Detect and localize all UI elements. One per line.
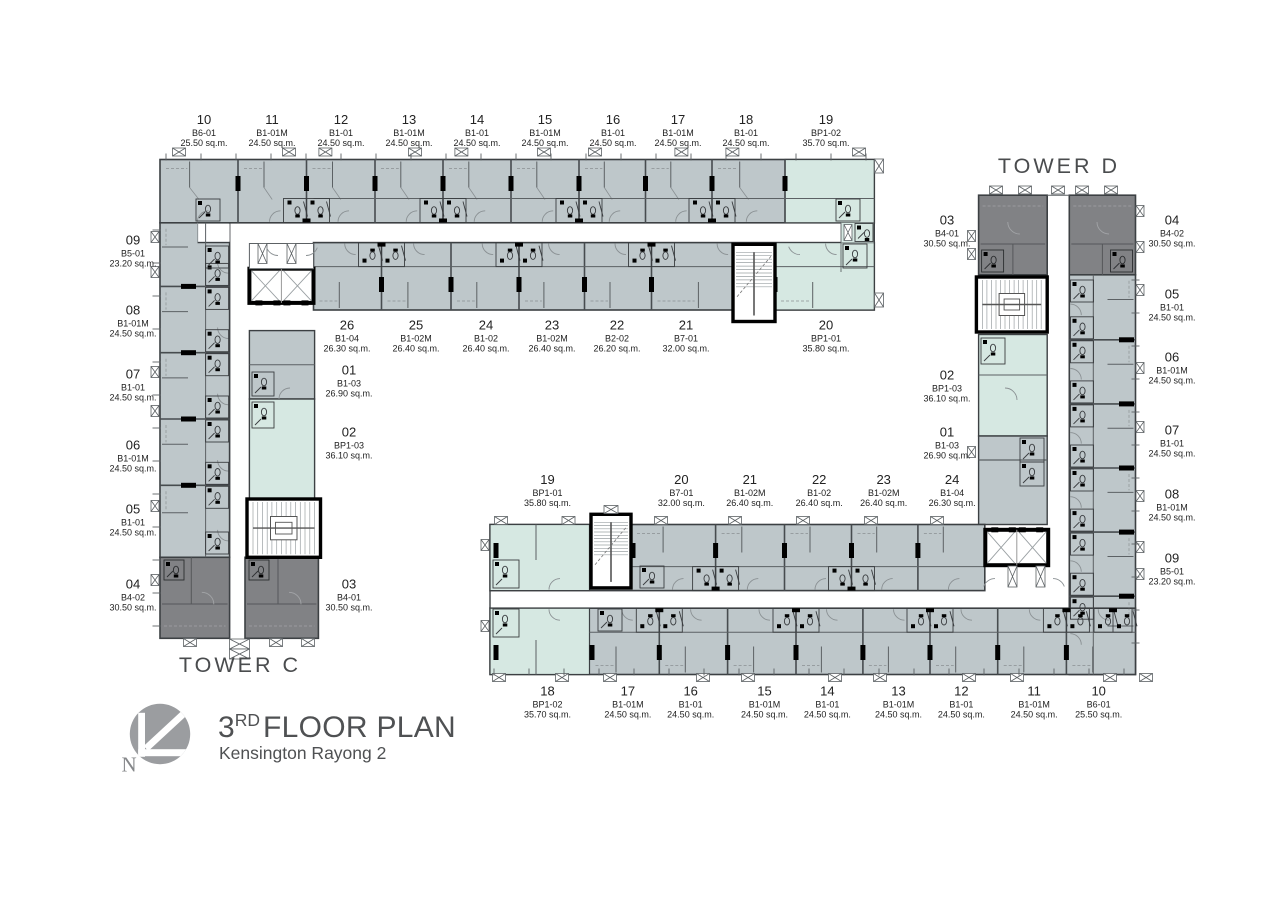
svg-text:11: 11 [1027,684,1041,699]
svg-text:B1-02M: B1-02M [868,488,900,498]
svg-text:23.20 sq.m.: 23.20 sq.m. [1148,577,1195,587]
svg-text:B4-01: B4-01 [935,229,959,239]
svg-text:B1-02M: B1-02M [734,488,766,498]
svg-text:B5-01: B5-01 [1160,567,1184,577]
svg-text:TOWER C: TOWER C [179,653,301,677]
svg-text:08: 08 [1165,487,1179,502]
svg-text:BP1-01: BP1-01 [532,488,562,498]
svg-text:B1-01: B1-01 [121,518,145,528]
svg-text:24: 24 [945,472,959,487]
svg-text:19: 19 [819,112,833,127]
svg-text:09: 09 [1165,551,1179,566]
svg-text:B1-01: B1-01 [329,128,353,138]
svg-text:24.50 sq.m.: 24.50 sq.m. [741,710,788,720]
svg-text:13: 13 [891,684,905,699]
svg-text:01: 01 [940,425,954,440]
svg-text:16: 16 [683,684,697,699]
svg-text:19: 19 [540,472,554,487]
svg-text:B4-02: B4-02 [1160,229,1184,239]
svg-text:24.50 sq.m.: 24.50 sq.m. [667,710,714,720]
svg-text:B1-01M: B1-01M [529,128,561,138]
svg-text:B4-01: B4-01 [337,593,361,603]
svg-text:B1-01M: B1-01M [749,700,781,710]
svg-text:B7-01: B7-01 [669,488,693,498]
svg-text:04: 04 [126,577,140,592]
svg-text:BP1-01: BP1-01 [811,334,841,344]
svg-text:26.40 sq.m.: 26.40 sq.m. [726,498,773,508]
svg-text:26.40 sq.m.: 26.40 sq.m. [860,498,907,508]
svg-text:24.50 sq.m.: 24.50 sq.m. [109,393,156,403]
svg-text:B1-03: B1-03 [337,379,361,389]
svg-text:BP1-02: BP1-02 [532,700,562,710]
svg-text:24.50 sq.m.: 24.50 sq.m. [1011,710,1058,720]
svg-text:24.50 sq.m.: 24.50 sq.m. [938,710,985,720]
svg-text:18: 18 [540,684,554,699]
svg-text:24.50 sq.m.: 24.50 sq.m. [1148,513,1195,523]
svg-text:30.50 sq.m.: 30.50 sq.m. [325,603,372,613]
svg-text:20: 20 [819,318,833,333]
svg-text:B1-01M: B1-01M [1018,700,1050,710]
svg-text:BP1-03: BP1-03 [932,384,962,394]
svg-text:07: 07 [126,367,140,382]
svg-text:24.50 sq.m.: 24.50 sq.m. [722,138,769,148]
svg-text:12: 12 [954,684,968,699]
svg-text:B1-01M: B1-01M [1156,366,1188,376]
svg-text:36.10 sq.m.: 36.10 sq.m. [923,394,970,404]
svg-text:14: 14 [470,112,484,127]
svg-text:B1-01M: B1-01M [662,128,694,138]
svg-text:22: 22 [610,318,624,333]
svg-text:17: 17 [671,112,685,127]
svg-text:B1-04: B1-04 [940,488,964,498]
svg-text:26.40 sq.m.: 26.40 sq.m. [796,498,843,508]
svg-text:36.10 sq.m.: 36.10 sq.m. [325,451,372,461]
svg-text:B1-02M: B1-02M [536,334,568,344]
svg-text:24.50 sq.m.: 24.50 sq.m. [654,138,701,148]
svg-text:15: 15 [538,112,552,127]
svg-text:30.50 sq.m.: 30.50 sq.m. [923,239,970,249]
svg-text:30.50 sq.m.: 30.50 sq.m. [1148,239,1195,249]
svg-text:B5-01: B5-01 [121,249,145,259]
svg-text:20: 20 [674,472,688,487]
svg-text:23: 23 [876,472,890,487]
svg-text:24.50 sq.m.: 24.50 sq.m. [875,710,922,720]
svg-text:B1-01: B1-01 [949,700,973,710]
svg-text:24.50 sq.m.: 24.50 sq.m. [804,710,851,720]
svg-text:B1-02: B1-02 [807,488,831,498]
svg-text:24.50 sq.m.: 24.50 sq.m. [317,138,364,148]
svg-text:B1-02: B1-02 [474,334,498,344]
svg-text:26.20 sq.m.: 26.20 sq.m. [593,344,640,354]
svg-text:BP1-03: BP1-03 [334,441,364,451]
svg-text:B1-01M: B1-01M [612,700,644,710]
svg-text:N: N [122,753,137,777]
svg-text:B1-01M: B1-01M [1156,503,1188,513]
svg-text:17: 17 [621,684,635,699]
svg-text:30.50 sq.m.: 30.50 sq.m. [109,603,156,613]
svg-text:B1-01: B1-01 [734,128,758,138]
svg-text:24.50 sq.m.: 24.50 sq.m. [521,138,568,148]
svg-text:24.50 sq.m.: 24.50 sq.m. [453,138,500,148]
svg-text:24.50 sq.m.: 24.50 sq.m. [589,138,636,148]
svg-text:13: 13 [402,112,416,127]
svg-text:04: 04 [1165,213,1179,228]
svg-text:35.70 sq.m.: 35.70 sq.m. [802,138,849,148]
svg-text:03: 03 [342,577,356,592]
svg-text:B6-01: B6-01 [1087,700,1111,710]
svg-text:25: 25 [409,318,423,333]
svg-text:24.50 sq.m.: 24.50 sq.m. [1148,376,1195,386]
svg-text:32.00 sq.m.: 32.00 sq.m. [662,344,709,354]
svg-text:B1-01M: B1-01M [393,128,425,138]
svg-text:10: 10 [197,112,211,127]
svg-text:26.40 sq.m.: 26.40 sq.m. [528,344,575,354]
svg-text:B1-01M: B1-01M [256,128,288,138]
svg-text:B1-02M: B1-02M [400,334,432,344]
svg-text:26: 26 [340,318,354,333]
svg-text:16: 16 [606,112,620,127]
svg-text:24.50 sq.m.: 24.50 sq.m. [248,138,295,148]
svg-text:24: 24 [479,318,493,333]
svg-text:B1-01: B1-01 [121,383,145,393]
svg-text:03: 03 [940,213,954,228]
svg-text:21: 21 [743,472,757,487]
svg-text:08: 08 [126,303,140,318]
svg-text:26.30 sq.m.: 26.30 sq.m. [323,344,370,354]
svg-text:26.30 sq.m.: 26.30 sq.m. [929,498,976,508]
svg-text:B1-01: B1-01 [601,128,625,138]
svg-text:05: 05 [1165,287,1179,302]
svg-text:26.40 sq.m.: 26.40 sq.m. [462,344,509,354]
svg-text:24.50 sq.m.: 24.50 sq.m. [1148,313,1195,323]
svg-text:B2-02: B2-02 [605,334,629,344]
svg-text:B1-01: B1-01 [679,700,703,710]
svg-text:B1-01M: B1-01M [883,700,915,710]
svg-text:25.50 sq.m.: 25.50 sq.m. [1075,710,1122,720]
svg-text:24.50 sq.m.: 24.50 sq.m. [385,138,432,148]
svg-text:15: 15 [757,684,771,699]
svg-text:B4-02: B4-02 [121,593,145,603]
svg-text:B1-04: B1-04 [335,334,359,344]
svg-text:24.50 sq.m.: 24.50 sq.m. [604,710,651,720]
svg-text:06: 06 [126,438,140,453]
svg-text:12: 12 [334,112,348,127]
svg-text:24.50 sq.m.: 24.50 sq.m. [109,329,156,339]
svg-text:18: 18 [739,112,753,127]
svg-text:B1-03: B1-03 [935,441,959,451]
svg-text:BP1-02: BP1-02 [811,128,841,138]
svg-text:B1-01: B1-01 [1160,439,1184,449]
svg-text:B1-01M: B1-01M [117,454,149,464]
svg-text:32.00 sq.m.: 32.00 sq.m. [658,498,705,508]
svg-text:06: 06 [1165,350,1179,365]
svg-text:01: 01 [342,363,356,378]
svg-text:35.70 sq.m.: 35.70 sq.m. [524,710,571,720]
svg-text:22: 22 [812,472,826,487]
svg-text:Kensington Rayong 2: Kensington Rayong 2 [219,743,386,763]
svg-text:23.20 sq.m.: 23.20 sq.m. [109,259,156,269]
svg-text:26.40 sq.m.: 26.40 sq.m. [392,344,439,354]
svg-text:24.50 sq.m.: 24.50 sq.m. [109,528,156,538]
svg-text:35.80 sq.m.: 35.80 sq.m. [802,344,849,354]
svg-text:TOWER D: TOWER D [998,154,1120,178]
svg-text:26.90 sq.m.: 26.90 sq.m. [325,389,372,399]
svg-text:07: 07 [1165,423,1179,438]
svg-text:05: 05 [126,502,140,517]
svg-text:21: 21 [679,318,693,333]
svg-text:23: 23 [545,318,559,333]
svg-text:B1-01: B1-01 [1160,303,1184,313]
svg-text:10: 10 [1091,684,1105,699]
svg-text:02: 02 [940,368,954,383]
svg-text:24.50 sq.m.: 24.50 sq.m. [109,464,156,474]
svg-text:B1-01: B1-01 [815,700,839,710]
svg-text:09: 09 [126,233,140,248]
svg-text:35.80 sq.m.: 35.80 sq.m. [524,498,571,508]
svg-text:11: 11 [265,112,279,127]
svg-text:02: 02 [342,425,356,440]
svg-text:14: 14 [820,684,834,699]
svg-text:B1-01: B1-01 [465,128,489,138]
svg-text:B6-01: B6-01 [192,128,216,138]
svg-text:B7-01: B7-01 [674,334,698,344]
svg-text:B1-01M: B1-01M [117,319,149,329]
svg-text:26.90 sq.m.: 26.90 sq.m. [923,451,970,461]
svg-text:25.50 sq.m.: 25.50 sq.m. [180,138,227,148]
svg-text:24.50 sq.m.: 24.50 sq.m. [1148,449,1195,459]
